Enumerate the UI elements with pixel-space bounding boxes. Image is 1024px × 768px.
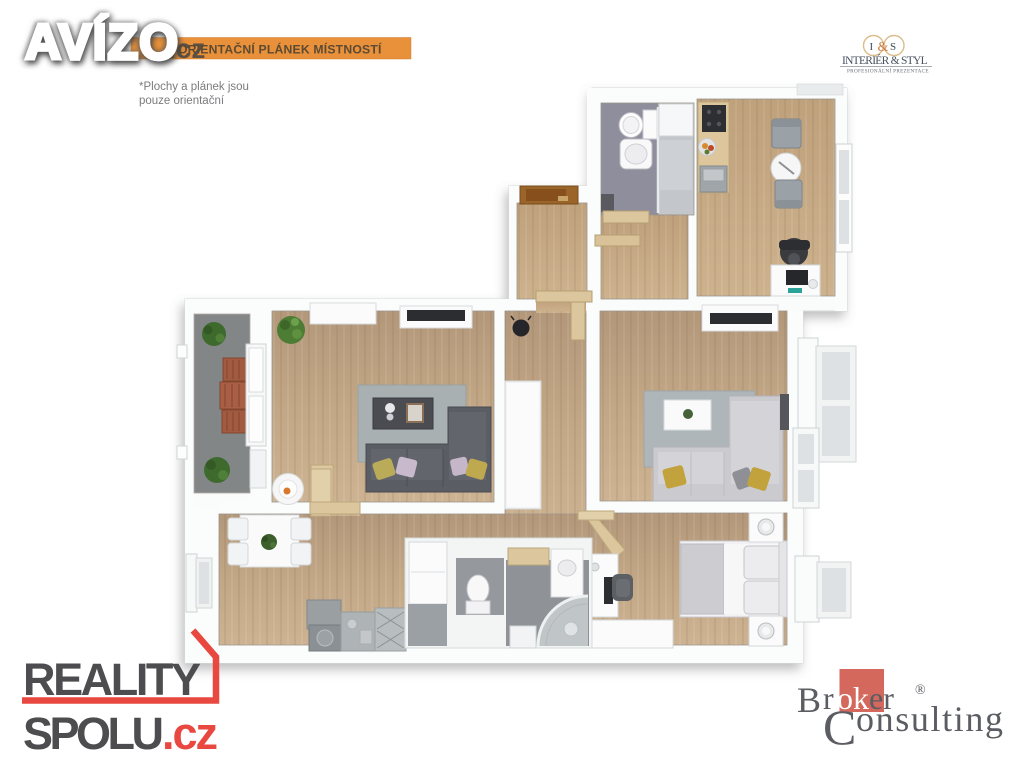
svg-text:&: & — [878, 40, 889, 55]
svg-text:B: B — [797, 680, 821, 720]
svg-text:C: C — [823, 699, 856, 755]
svg-text:®: ® — [915, 683, 926, 698]
svg-text:SPOLU: SPOLU — [23, 708, 164, 759]
svg-text:.cz: .cz — [162, 708, 218, 759]
svg-text:AVÍZO: AVÍZO — [25, 14, 179, 70]
svg-text:ORIENTAČNÍ PLÁNEK MÍSTNOSTÍ: ORIENTAČNÍ PLÁNEK MÍSTNOSTÍ — [178, 42, 382, 57]
svg-text:PROFESIONÁLNÍ PREZENTACE: PROFESIONÁLNÍ PREZENTACE — [847, 67, 929, 75]
svg-text:onsulting: onsulting — [856, 699, 1003, 739]
svg-text:INTERIÉR & STYL: INTERIÉR & STYL — [842, 53, 928, 67]
svg-text:pouze orientační: pouze orientační — [139, 95, 225, 107]
svg-text:S: S — [890, 41, 896, 53]
svg-text:I: I — [870, 41, 874, 53]
svg-text:*Plochy a plánek jsou: *Plochy a plánek jsou — [139, 81, 249, 93]
